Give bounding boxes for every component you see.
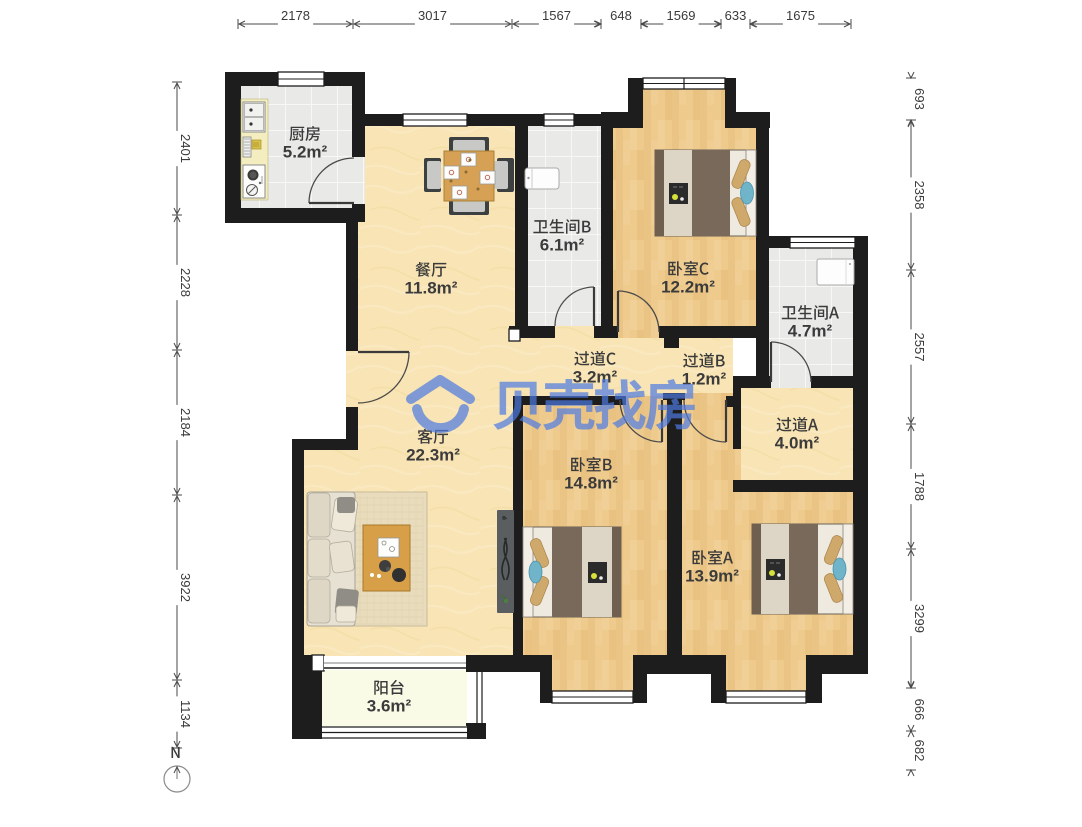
svg-text:2401: 2401 — [178, 134, 193, 163]
svg-text:14.8m²: 14.8m² — [564, 474, 618, 493]
svg-text:633: 633 — [725, 8, 747, 23]
svg-text:4.0m²: 4.0m² — [775, 434, 820, 453]
svg-text:1134: 1134 — [178, 700, 193, 728]
svg-text:648: 648 — [610, 8, 632, 23]
svg-text:11.8m²: 11.8m² — [405, 279, 458, 298]
svg-text:2184: 2184 — [178, 408, 193, 437]
svg-text:1567: 1567 — [542, 8, 571, 23]
svg-text:3922: 3922 — [178, 573, 193, 602]
svg-text:3.6m²: 3.6m² — [367, 697, 412, 716]
svg-text:2557: 2557 — [912, 333, 927, 362]
svg-text:2178: 2178 — [281, 8, 310, 23]
svg-text:3299: 3299 — [912, 604, 927, 633]
svg-text:4.7m²: 4.7m² — [788, 322, 833, 341]
svg-text:12.2m²: 12.2m² — [661, 278, 715, 297]
svg-text:6.1m²: 6.1m² — [540, 236, 585, 255]
svg-text:666: 666 — [912, 699, 927, 721]
svg-text:2228: 2228 — [178, 268, 193, 297]
svg-text:13.9m²: 13.9m² — [685, 567, 739, 586]
svg-text:5.2m²: 5.2m² — [283, 143, 328, 162]
svg-text:2358: 2358 — [912, 181, 927, 210]
svg-text:1788: 1788 — [912, 472, 927, 501]
svg-text:3017: 3017 — [418, 8, 447, 23]
svg-text:682: 682 — [912, 740, 927, 762]
svg-text:693: 693 — [912, 88, 927, 110]
svg-text:22.3m²: 22.3m² — [406, 446, 460, 465]
svg-text:1569: 1569 — [667, 8, 696, 23]
svg-text:1675: 1675 — [786, 8, 815, 23]
